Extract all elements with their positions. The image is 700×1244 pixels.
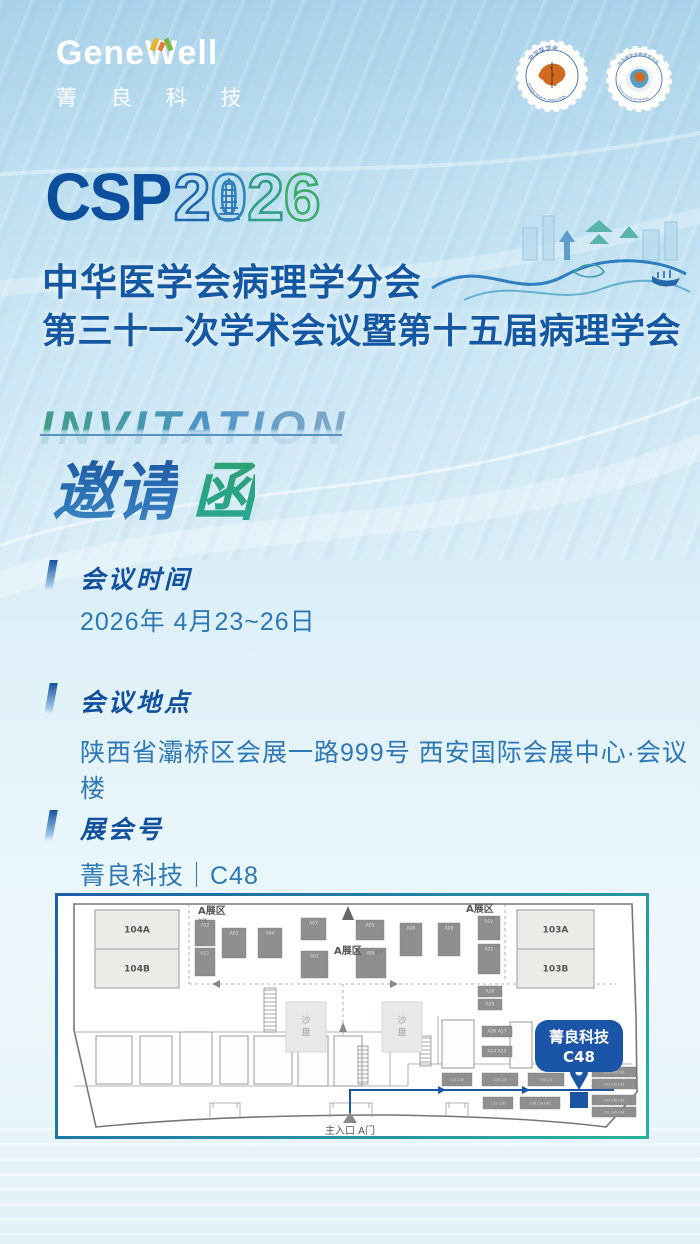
service-room xyxy=(442,1020,474,1068)
section-marker xyxy=(44,560,57,591)
booth-code: A21 xyxy=(485,947,494,953)
zone-label-center: A展区 xyxy=(334,945,362,957)
meeting-time-title: 会议时间 xyxy=(80,560,192,596)
background-bottom-streaks xyxy=(0,1128,700,1244)
zone-label-left: A展区 xyxy=(198,905,226,917)
genewell-booth-badge: 菁良科技 C48 xyxy=(535,1020,623,1072)
booth-number-title: 展会号 xyxy=(80,810,164,846)
booth-code: A04 xyxy=(266,931,275,937)
conference-title-line2: 第三十一次学术会议暨第十五届病理学会 xyxy=(42,303,681,354)
path-arrow-right xyxy=(390,980,398,988)
exhibition-floor-plan: 104A104B103A103BA12A11A03A04A07A01A05A06… xyxy=(55,893,649,1139)
zone-label-right: A展区 xyxy=(466,903,494,915)
entrance-door xyxy=(210,1103,240,1117)
invitation-underline xyxy=(40,434,342,436)
logo-text: GeneWell xyxy=(56,34,218,72)
pagoda-icon xyxy=(217,177,241,223)
booth-code: C47 C48 C43 xyxy=(604,1098,625,1102)
room-label: 104A xyxy=(124,926,150,936)
path-arrow-left xyxy=(212,980,220,988)
sand-table-label: 盘 xyxy=(301,1026,310,1038)
section-marker xyxy=(44,683,57,714)
booth-code: C43 C45 C47 xyxy=(604,1082,625,1086)
logo-wordmark: GeneWell xyxy=(56,34,256,73)
section-marker xyxy=(44,810,57,841)
floor-plan-svg: 104A104B103A103BA12A11A03A04A07A01A05A06… xyxy=(58,896,646,1136)
year-digit-6: 6 xyxy=(284,164,321,231)
meeting-venue-title: 会议地点 xyxy=(80,683,192,719)
invitation-poster: GeneWell 菁 良 科 技 中华医学会 CHINESE MEDICAL A… xyxy=(0,0,700,1244)
booth-code: A09 xyxy=(445,926,454,932)
main-entrance-label: 主入口 A门 xyxy=(325,1124,375,1136)
zone-sub-left: 左侧 xyxy=(198,917,207,924)
year-digit-0: 0 xyxy=(210,164,247,231)
booth-code: C04 C05 xyxy=(493,1078,507,1082)
association-seals: 中华医学会 CHINESE MEDICAL ASSOCIATION 中华医学会病… xyxy=(512,32,688,122)
service-room xyxy=(140,1036,172,1084)
invitation-zh-part2: 函 xyxy=(192,442,255,533)
invitation-zh-part1: 邀请 xyxy=(52,442,178,533)
booth-code: A05 xyxy=(366,923,375,929)
room-label: 104B xyxy=(124,965,150,975)
csp-wordmark: CSP xyxy=(45,164,170,231)
route-arrow xyxy=(438,1086,446,1094)
booth-code: A11 xyxy=(201,951,210,957)
badge-booth-code: C48 xyxy=(563,1048,595,1066)
booth-number-value: 菁良科技｜C48 xyxy=(80,856,259,892)
room-label: 103B xyxy=(543,965,569,975)
event-logo: CSP 2 0 2 6 xyxy=(42,164,321,231)
room-label: 103A xyxy=(543,926,569,936)
sand-table-label: 盘 xyxy=(397,1026,406,1038)
booth-code: C35 C36 xyxy=(491,1101,505,1105)
sand-table-label: 沙 xyxy=(301,1015,310,1026)
booth-code: A29 xyxy=(486,1002,495,1008)
brand-logo: GeneWell 菁 良 科 技 xyxy=(56,34,256,112)
booth-code: C41 C42 C44 xyxy=(604,1110,625,1114)
year-digit-2b: 2 xyxy=(247,164,284,231)
sand-table-area xyxy=(382,1002,422,1052)
zone-sub-right: 右侧 xyxy=(486,915,495,922)
logo-chinese-name: 菁 良 科 技 xyxy=(56,82,256,112)
booth-code: C38 C39 C40 xyxy=(530,1101,551,1105)
meeting-venue-value: 陕西省灞桥区会展一路999号 西安国际会展中心·会议楼 xyxy=(80,733,700,805)
booth-code: A01 xyxy=(310,954,319,960)
service-room xyxy=(96,1036,132,1084)
booth-code: A08 xyxy=(407,926,416,932)
booth-code: C01 C02 xyxy=(450,1078,464,1082)
meeting-time-value: 2026年 4月23~26日 xyxy=(80,602,316,638)
badge-company-name: 菁良科技 xyxy=(549,1028,610,1046)
cma-seal-icon: 中华医学会 CHINESE MEDICAL ASSOCIATION xyxy=(518,42,586,110)
booth-code: A24 A25 xyxy=(487,1049,506,1055)
entrance-door xyxy=(446,1103,468,1117)
booth-code: A03 xyxy=(230,931,239,937)
north-arrow-icon xyxy=(342,906,354,920)
escalator-shaft xyxy=(358,1046,368,1084)
service-room xyxy=(510,1022,532,1068)
service-room xyxy=(180,1032,212,1084)
booth-code: C30 C31 xyxy=(539,1078,553,1082)
sand-table-area xyxy=(286,1002,326,1052)
route-arrow xyxy=(522,1086,530,1094)
year-digit-2: 2 xyxy=(174,164,211,231)
booth-code: A07 xyxy=(309,921,318,927)
booth-code: A26 A27 xyxy=(487,1029,506,1035)
escalator-shaft xyxy=(264,988,276,1032)
sand-table-label: 沙 xyxy=(397,1015,406,1026)
booth-code: A30 xyxy=(486,989,495,995)
invitation-chinese: 邀请 函 xyxy=(52,442,255,533)
path-arrow-up xyxy=(339,1022,347,1032)
entrance-arrow-icon xyxy=(343,1112,357,1123)
csop-seal-icon: 中华医学会病理学分会 Chinese Society of Pathology xyxy=(608,48,670,110)
service-room xyxy=(220,1036,248,1084)
zone-sub-center: 展厅 xyxy=(374,950,383,956)
booth-c48-highlight xyxy=(570,1092,588,1108)
conference-title-line1: 中华医学会病理学分会 xyxy=(42,252,422,306)
